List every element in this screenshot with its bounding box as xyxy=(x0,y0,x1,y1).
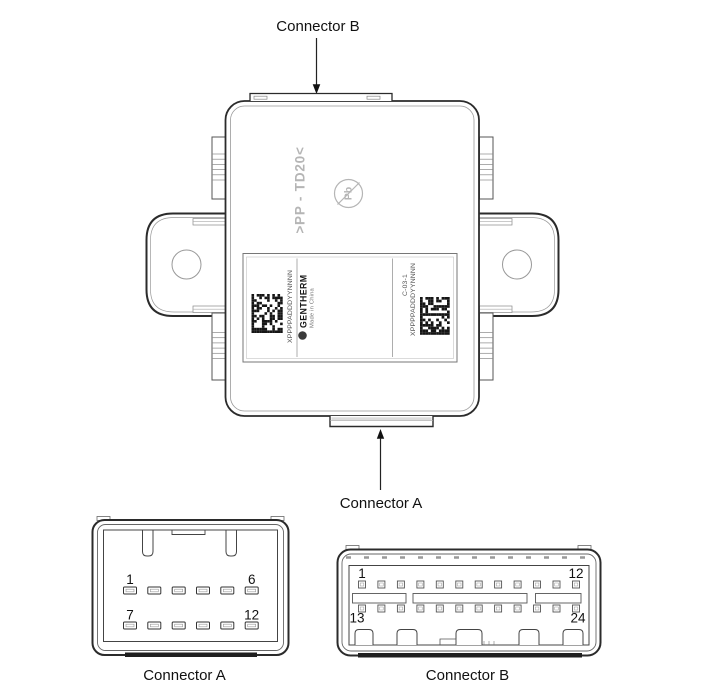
connector-b-pinout: 1 12 13 24 Connector B xyxy=(338,546,601,685)
connector-b-pointer: Connector B xyxy=(276,18,359,94)
part-code: C-03-1 xyxy=(402,274,409,296)
connector-a-pinout: 1 6 7 12 Connector A xyxy=(93,517,289,685)
mounting-hole-right xyxy=(503,250,532,279)
pb-free-symbol-text: Pb xyxy=(343,187,355,200)
mounting-ear-right xyxy=(479,214,559,317)
pin-number: 24 xyxy=(570,611,586,626)
pin-number: 12 xyxy=(244,608,259,623)
gentherm-logo-icon xyxy=(298,331,307,340)
connector-a-housing xyxy=(93,520,289,655)
mounting-hole-left xyxy=(172,250,201,279)
country-of-origin: Made in China xyxy=(310,287,316,328)
pin-number: 13 xyxy=(349,611,364,626)
molded-material-code: >PP - TD20< xyxy=(293,146,308,233)
pin-number: 12 xyxy=(568,566,583,581)
connector-a-pointer-label: Connector A xyxy=(340,495,423,512)
product-label-sticker: XPPPPADDDYYNNNN GENTHERM Made in China C… xyxy=(243,254,457,363)
module-bottom-tab xyxy=(330,416,433,427)
connector-b-arrowhead-icon xyxy=(313,84,321,94)
pin-number: 1 xyxy=(126,572,134,587)
connector-a-arrowhead-icon xyxy=(377,429,384,439)
mounting-ear-left xyxy=(147,214,226,317)
module-connector-diagram: Connector B xyxy=(0,0,701,699)
brand-name: GENTHERM xyxy=(299,274,309,328)
serial-number-left: XPPPPADDDYYNNNN xyxy=(287,270,294,343)
connector-a-pointer: Connector A xyxy=(340,429,423,512)
pin-number: 7 xyxy=(126,608,134,623)
blade-slot xyxy=(536,594,582,604)
serial-number-right: XPPPPADDDYYNNNN xyxy=(410,263,417,336)
blade-slot xyxy=(413,594,527,604)
pin-number: 1 xyxy=(358,566,366,581)
control-module-drawing: >PP - TD20< Pb XPPPPADDDYYNNNN GENTHERM … xyxy=(147,94,559,427)
diagram-canvas: Connector B xyxy=(0,0,701,699)
connector-a-caption: Connector A xyxy=(143,667,226,684)
connector-b-pointer-label: Connector B xyxy=(276,18,359,35)
blade-slot xyxy=(353,594,407,604)
connector-b-caption: Connector B xyxy=(426,667,509,684)
module-top-tab xyxy=(250,94,392,102)
pin-number: 6 xyxy=(248,572,256,587)
